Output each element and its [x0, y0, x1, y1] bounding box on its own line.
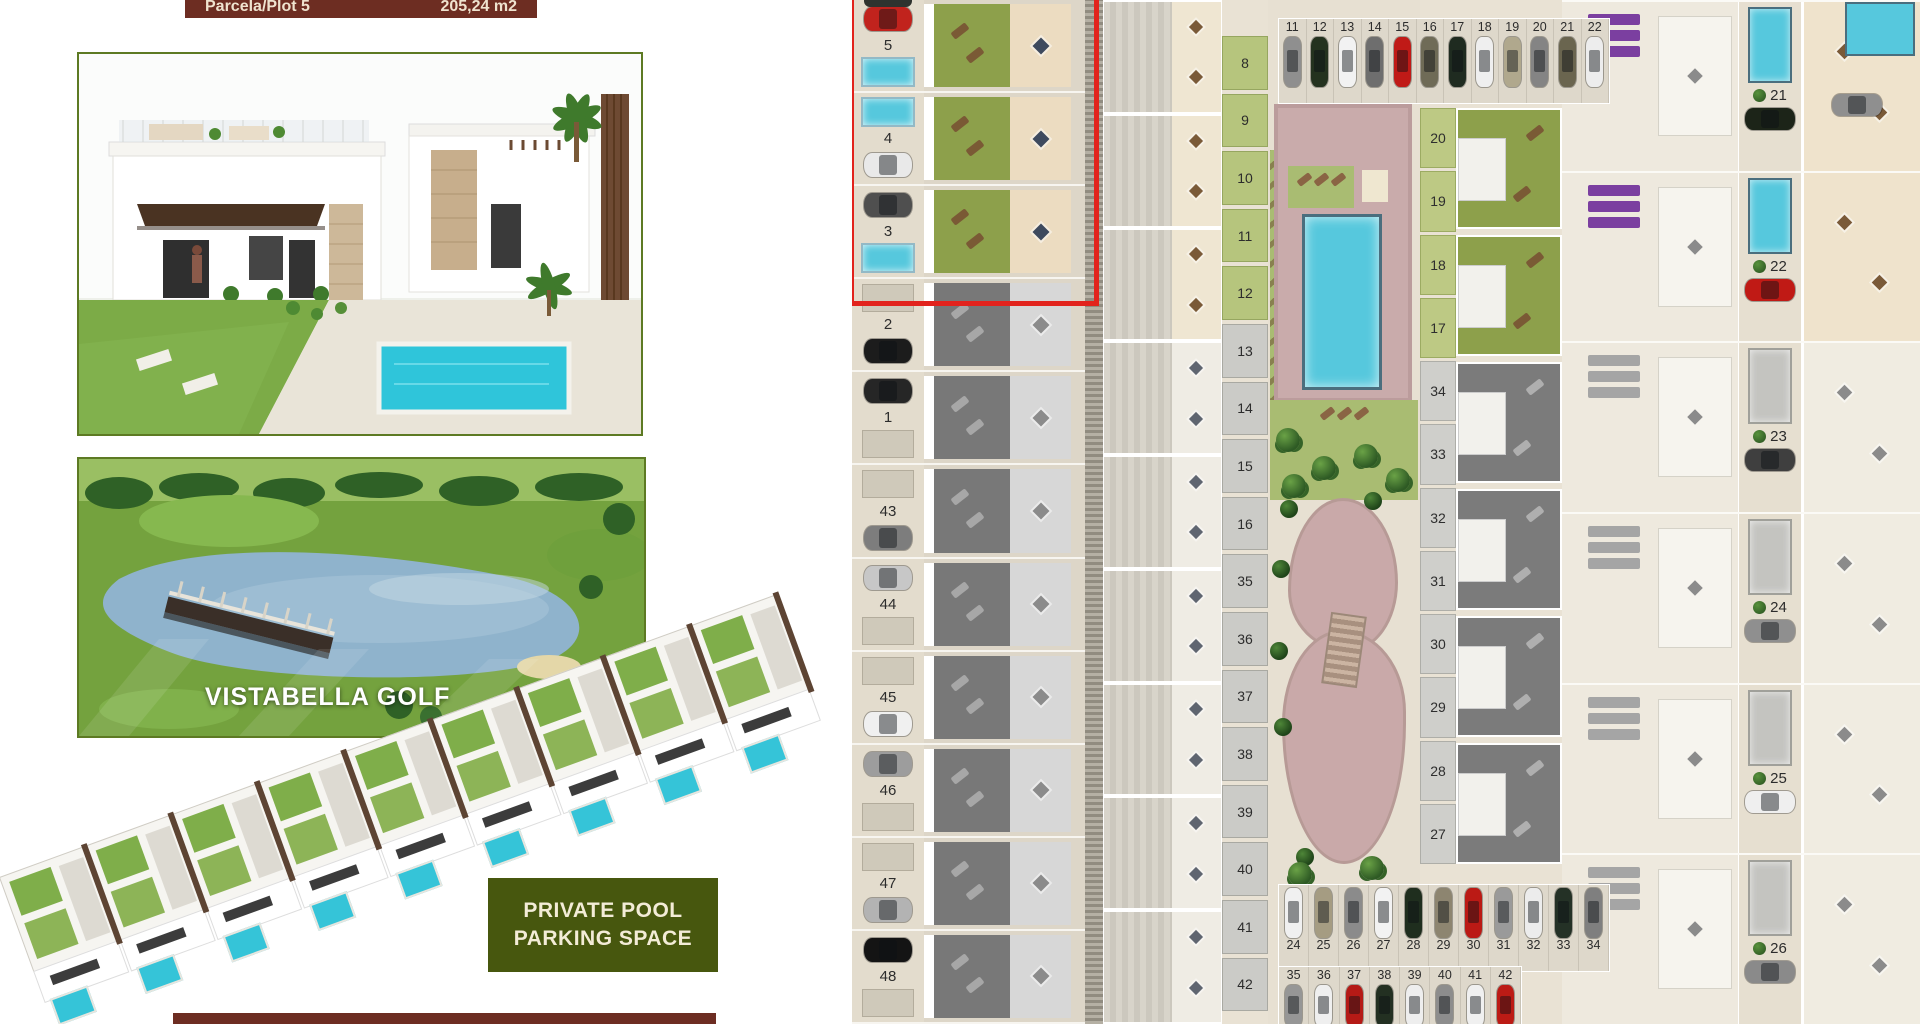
lounger-icon [1336, 406, 1352, 421]
house-footprint [924, 656, 1071, 739]
parking-spot: 21 [1554, 19, 1582, 103]
plot-number-cell: 34 [1420, 361, 1456, 421]
villa-terrace-right [1802, 173, 1920, 342]
car-icon [1315, 888, 1332, 938]
car-icon [864, 379, 912, 403]
car-icon [1449, 37, 1466, 87]
parking-slot [859, 523, 917, 553]
car-icon [864, 898, 912, 922]
car-icon [1375, 888, 1392, 938]
parking-spot: 37 [1340, 967, 1370, 1024]
patio-area [1172, 685, 1221, 795]
house-row [1103, 342, 1222, 454]
parking-spot: 32 [1519, 885, 1549, 971]
communal-pool [1302, 214, 1382, 390]
plot-banner: Parcela/Plot 5 205,24 m2 [185, 0, 537, 18]
plot-number-cell: 20 [1420, 108, 1456, 168]
shrub-icon [1753, 601, 1766, 614]
tree-icon [1386, 468, 1410, 492]
parking-spot: 18 [1472, 19, 1500, 103]
parking-number: 33 [1557, 938, 1571, 953]
duplex-block [1456, 235, 1562, 356]
parking-slot [859, 616, 917, 646]
pool-icon [1748, 519, 1792, 595]
paved-pad [863, 471, 913, 497]
parking-spot: 13 [1334, 19, 1362, 103]
house-row [1103, 684, 1222, 796]
tree-icon [1282, 474, 1306, 498]
plot-number: 22 [1770, 258, 1787, 275]
plot-number: 21 [1770, 87, 1787, 104]
tree-icon [1276, 428, 1300, 452]
roof-area [1104, 798, 1172, 908]
house-footprint [924, 749, 1071, 832]
roof-area [1104, 571, 1172, 681]
plot-row: 43 [852, 465, 1085, 558]
lounger-platform [1288, 166, 1354, 208]
sun-loungers-icon [1588, 526, 1640, 569]
parking-spot: 36 [1309, 967, 1339, 1024]
roof-area [1104, 230, 1172, 340]
shrub-icon [1270, 642, 1288, 660]
plot-row: 44 [852, 559, 1085, 652]
house-footprint [924, 469, 1071, 552]
paved-pad [863, 618, 913, 644]
tree-icon [1360, 856, 1384, 880]
car-icon [1394, 37, 1411, 87]
plot-number-cell: 28 [1420, 741, 1456, 801]
parking-spot: 24 [1279, 885, 1309, 971]
house-footprint [924, 563, 1071, 646]
plot-column-left: 5 [852, 0, 1085, 1024]
plot-number: 2 [884, 316, 892, 333]
parking-number: 36 [1317, 968, 1331, 983]
plot-parking-lane: 45 [852, 652, 924, 743]
parking-number: 39 [1408, 968, 1422, 983]
patio-area [1172, 457, 1221, 567]
car-icon [1745, 791, 1795, 813]
plot-parking-lane: 47 [852, 838, 924, 929]
car-icon [1745, 279, 1795, 301]
parking-spot: 41 [1461, 967, 1491, 1024]
parking-number: 29 [1437, 938, 1451, 953]
plot-number: 1 [884, 409, 892, 426]
house-row [1103, 797, 1222, 909]
plot-number: 45 [880, 689, 897, 706]
shrub-icon [1274, 718, 1292, 736]
parking-slot [859, 336, 917, 366]
parking-spot: 34 [1579, 885, 1609, 971]
plot-number-strip-right: 201918173433323130292827 [1420, 108, 1456, 864]
plot-number-cell: 41 [1222, 900, 1268, 954]
parking-slot [859, 469, 917, 499]
villa-lane: 25 [1738, 685, 1802, 854]
lounger-icon [1330, 172, 1346, 187]
plot-number-cell: 14 [1222, 382, 1268, 436]
car-icon [1555, 888, 1572, 938]
duplex-block [1456, 489, 1562, 610]
plot-banner-name: Parcela/Plot 5 [205, 0, 310, 16]
plot-number-cell: 32 [1420, 488, 1456, 548]
parking-number: 17 [1450, 20, 1464, 35]
roof-area [1104, 912, 1172, 1022]
plot-row: 46 [852, 745, 1085, 838]
plot-number-cell: 18 [1420, 235, 1456, 295]
terrace-area [1010, 469, 1071, 552]
plot-number-cell: 39 [1222, 785, 1268, 839]
parking-number: 30 [1467, 938, 1481, 953]
plot-number-cell: 31 [1420, 551, 1456, 611]
villa-terrace-left [1562, 173, 1738, 342]
villa-plot-row: 26 [1562, 853, 1920, 1024]
plot-number-cell: 35 [1222, 554, 1268, 608]
parking-number: 41 [1468, 968, 1482, 983]
plot-number-cell: 40 [1222, 842, 1268, 896]
duplex-block [1456, 743, 1562, 864]
house-row [1103, 570, 1222, 682]
car-icon [1525, 888, 1542, 938]
plot-label-row: 24 [1753, 599, 1787, 616]
parking-number: 27 [1377, 938, 1391, 953]
parking-number: 12 [1313, 20, 1327, 35]
duplex-block [1456, 616, 1562, 737]
garden-area [934, 656, 1010, 739]
villa-plot-row: 24 [1562, 512, 1920, 683]
plot-number: 43 [880, 503, 897, 520]
plot-label-row: 21 [1753, 87, 1787, 104]
lounger-icon [1296, 172, 1312, 187]
plot-column-right-middle [1456, 108, 1562, 864]
parking-number: 31 [1497, 938, 1511, 953]
parking-spot: 25 [1309, 885, 1339, 971]
garden-area [934, 749, 1010, 832]
parking-slot [859, 429, 917, 459]
villa-building [1658, 869, 1732, 989]
paved-pad [863, 844, 913, 870]
villa-plot-row: 22 [1562, 171, 1920, 342]
house-core [1458, 265, 1506, 328]
plot-label-row: 23 [1753, 428, 1787, 445]
car-icon [1586, 37, 1603, 87]
villa-terrace-left [1562, 343, 1738, 512]
parking-row-bottom-2: 35 36 37 38 39 40 41 [1278, 966, 1522, 1024]
parking-number: 22 [1588, 20, 1602, 35]
villa-building [1658, 16, 1732, 136]
house-row [1103, 115, 1222, 227]
villa-plot-row: 23 [1562, 341, 1920, 512]
villa-column-right: 21 22 [1562, 0, 1920, 1024]
lounger-icon [1313, 172, 1329, 187]
plot-row: 47 [852, 838, 1085, 931]
shrub-icon [1753, 772, 1766, 785]
patio-area [1172, 116, 1221, 226]
plot-number-cell: 29 [1420, 677, 1456, 737]
plot-number-cell: 17 [1420, 298, 1456, 358]
terrace-area [1010, 842, 1071, 925]
car-icon [1559, 37, 1576, 87]
house-core [1458, 392, 1506, 455]
plot-banner-area: 205,24 m2 [440, 0, 517, 16]
lounger-icon [1319, 406, 1335, 421]
patio-area [1172, 230, 1221, 340]
plot-number-cell: 9 [1222, 94, 1268, 148]
private-pool-line2: PARKING SPACE [514, 925, 692, 953]
plot-number-strip-middle: 89101112131415163536373839404142 [1222, 36, 1268, 1011]
terrace-area [1010, 935, 1071, 1018]
parking-spot: 20 [1527, 19, 1555, 103]
house-core [1458, 773, 1506, 836]
villa-terrace-right [1802, 343, 1920, 512]
house-row [1103, 456, 1222, 568]
car-icon [1406, 985, 1423, 1024]
villa-terrace-right [1802, 514, 1920, 683]
plot-row: 48 [852, 931, 1085, 1024]
communal-courtyard [1268, 0, 1420, 1024]
villa-lane: 22 [1738, 173, 1802, 342]
duplex-block [1456, 108, 1562, 229]
parking-number: 42 [1498, 968, 1512, 983]
roof-area [1104, 116, 1172, 226]
plot-number-cell: 12 [1222, 266, 1268, 320]
car-icon [864, 526, 912, 550]
plot-number-cell: 27 [1420, 804, 1456, 864]
shrub-icon [1280, 500, 1298, 518]
parking-spot: 33 [1549, 885, 1579, 971]
house-footprint [924, 842, 1071, 925]
car-icon [1376, 985, 1393, 1024]
parking-number: 20 [1533, 20, 1547, 35]
shrub-icon [1364, 492, 1382, 510]
parking-spot: 40 [1430, 967, 1460, 1024]
parking-spot: 35 [1279, 967, 1309, 1024]
shrub-icon [1272, 560, 1290, 578]
parking-slot [859, 563, 917, 593]
villa-terrace-right [1802, 685, 1920, 854]
pool-icon [1748, 690, 1792, 766]
plot-label-row: 25 [1753, 770, 1787, 787]
pool-icon [1748, 860, 1792, 936]
tree-icon [1288, 862, 1312, 886]
car-icon [1465, 888, 1482, 938]
plot-number-cell: 42 [1222, 958, 1268, 1012]
terrace-area [1010, 563, 1071, 646]
villa-lane: 21 [1738, 2, 1802, 171]
patio-area [1172, 2, 1221, 112]
paved-pad [863, 804, 913, 830]
roof-area [1104, 343, 1172, 453]
parking-number: 28 [1407, 938, 1421, 953]
parking-spot: 12 [1307, 19, 1335, 103]
car-icon [1497, 985, 1514, 1024]
parking-number: 19 [1505, 20, 1519, 35]
car-icon [864, 712, 912, 736]
parking-number: 21 [1560, 20, 1574, 35]
plot-number-cell: 33 [1420, 424, 1456, 484]
parking-slot [859, 656, 917, 686]
sun-loungers-icon [1588, 697, 1640, 740]
plot-parking-lane: 43 [852, 465, 924, 556]
car-icon [1467, 985, 1484, 1024]
pool-icon [1748, 7, 1792, 83]
plot-number: 26 [1770, 940, 1787, 957]
parking-slot [859, 749, 917, 779]
plot-parking-lane: 46 [852, 745, 924, 836]
parking-number: 13 [1340, 20, 1354, 35]
parking-number: 26 [1347, 938, 1361, 953]
car-icon [1531, 37, 1548, 87]
parking-spot: 16 [1417, 19, 1445, 103]
car-icon [1504, 37, 1521, 87]
parking-number: 40 [1438, 968, 1452, 983]
plot-row: 1 [852, 372, 1085, 465]
car-icon [1346, 985, 1363, 1024]
parking-spot: 29 [1429, 885, 1459, 971]
car-icon [1745, 449, 1795, 471]
parking-number: 15 [1395, 20, 1409, 35]
parking-spot: 27 [1369, 885, 1399, 971]
pool-icon [1748, 348, 1792, 424]
car-icon [1405, 888, 1422, 938]
sun-loungers-icon [1588, 355, 1640, 398]
parking-spot: 15 [1389, 19, 1417, 103]
house-row [1103, 1, 1222, 113]
plot-number: 44 [880, 596, 897, 613]
plot-number-cell: 19 [1420, 171, 1456, 231]
house-footprint [924, 376, 1071, 459]
car-icon [1339, 37, 1356, 87]
house-core [1458, 646, 1506, 709]
plot-row: 45 [852, 652, 1085, 745]
garden-area [934, 935, 1010, 1018]
terrace-area [1010, 656, 1071, 739]
parking-spot: 22 [1582, 19, 1610, 103]
villa-render-photo [77, 52, 643, 436]
parking-spot: 19 [1499, 19, 1527, 103]
parking-row-top: 11 12 13 14 15 16 17 [1278, 18, 1610, 104]
parking-slot [859, 376, 917, 406]
parking-row-bottom-1: 24 25 26 27 28 29 30 [1278, 884, 1610, 972]
garden-area [934, 842, 1010, 925]
car-icon [1745, 961, 1795, 983]
patio-area [1172, 798, 1221, 908]
parking-slot [859, 709, 917, 739]
roof-area [1104, 457, 1172, 567]
plot-number-cell: 37 [1222, 670, 1268, 724]
car-icon [1311, 37, 1328, 87]
patio-area [1172, 571, 1221, 681]
plot-number-cell: 15 [1222, 439, 1268, 493]
villa-terrace-left [1562, 685, 1738, 854]
parking-spot: 14 [1362, 19, 1390, 103]
plot-number-cell: 30 [1420, 614, 1456, 674]
brochure-page: Parcela/Plot 5 205,24 m2 [0, 0, 1920, 1024]
villa-building [1658, 187, 1732, 307]
car-icon [1495, 888, 1512, 938]
plot-number-cell: 13 [1222, 324, 1268, 378]
plot-number: 24 [1770, 599, 1787, 616]
car-icon [1315, 985, 1332, 1024]
shrub-icon [1753, 89, 1766, 102]
car-icon [1421, 37, 1438, 87]
car-icon [1436, 985, 1453, 1024]
parking-slot [859, 935, 917, 965]
parking-slot [859, 842, 917, 872]
parking-spot: 42 [1491, 967, 1521, 1024]
plot-column-middle [1103, 0, 1222, 1024]
car-icon [1435, 888, 1452, 938]
house-core [1458, 519, 1506, 582]
car-icon [1285, 888, 1302, 938]
sun-loungers-icon [1588, 185, 1640, 228]
site-plan: 5 [852, 0, 1920, 1024]
shrub-icon [1753, 430, 1766, 443]
paved-pad [863, 990, 913, 1016]
terrace-area [1010, 749, 1071, 832]
villa-lane: 23 [1738, 343, 1802, 512]
plot-number: 48 [880, 968, 897, 985]
parking-slot [859, 988, 917, 1018]
parking-spot: 11 [1279, 19, 1307, 103]
villa-lane: 24 [1738, 514, 1802, 683]
plot-number-cell: 36 [1222, 612, 1268, 666]
plot-parking-lane: 44 [852, 559, 924, 650]
parking-number: 18 [1478, 20, 1492, 35]
terrace-area [1010, 376, 1071, 459]
plot-number: 25 [1770, 770, 1787, 787]
plot-number-cell: 8 [1222, 36, 1268, 90]
parking-slot [859, 802, 917, 832]
parking-spot: 17 [1444, 19, 1472, 103]
house-core [1458, 138, 1506, 201]
tree-icon [1354, 444, 1378, 468]
plot-parking-lane: 48 [852, 931, 924, 1022]
parking-number: 14 [1368, 20, 1382, 35]
parking-number: 11 [1286, 20, 1299, 35]
plot-number-cell: 16 [1222, 497, 1268, 551]
plot-label-row: 26 [1753, 940, 1787, 957]
villa-building [1658, 699, 1732, 819]
roof-area [1104, 2, 1172, 112]
pool-icon [1845, 2, 1915, 56]
parking-number: 34 [1587, 938, 1601, 953]
villa-render-illustration [79, 54, 641, 434]
parking-number: 37 [1347, 968, 1361, 983]
house-row [1103, 229, 1222, 341]
plot-number: 47 [880, 875, 897, 892]
parking-spot: 31 [1489, 885, 1519, 971]
car-icon [1366, 37, 1383, 87]
garden-area [934, 469, 1010, 552]
car-icon [1745, 108, 1795, 130]
villa-plot-row: 25 [1562, 683, 1920, 854]
villa-terrace-left [1562, 514, 1738, 683]
car-icon [864, 566, 912, 590]
deck-pad [1362, 170, 1388, 202]
car-icon [1345, 888, 1362, 938]
plot-number: 46 [880, 782, 897, 799]
golf-caption: VISTABELLA GOLF [205, 683, 451, 712]
villa-building [1658, 357, 1732, 477]
pool-icon [1748, 178, 1792, 254]
lounger-icon [1353, 406, 1369, 421]
parking-number: 35 [1287, 968, 1301, 983]
private-pool-line1: PRIVATE POOL [523, 897, 682, 925]
parking-slot [859, 895, 917, 925]
car-icon [1832, 94, 1882, 116]
plot-number-cell: 11 [1222, 209, 1268, 263]
car-icon [1284, 37, 1301, 87]
parking-spot: 38 [1370, 967, 1400, 1024]
